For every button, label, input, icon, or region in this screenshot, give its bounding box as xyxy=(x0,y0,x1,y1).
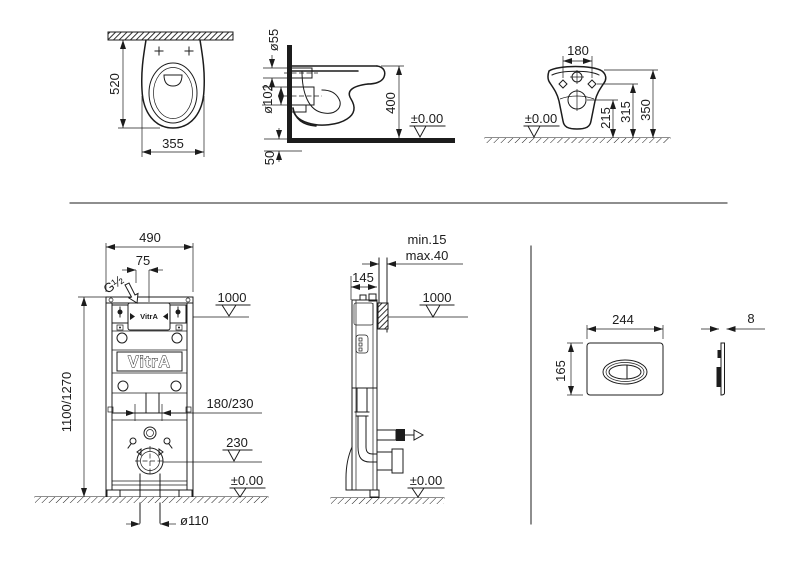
dim-floor: 50 xyxy=(262,151,277,165)
wc-pan-rear-view: 180 215 315 350 ±0.00 xyxy=(485,43,670,143)
supply-stub xyxy=(377,430,396,440)
dim-outlet-spacing: 180/230 xyxy=(207,396,254,411)
datum-triangle xyxy=(234,488,246,497)
brand-plate-label: VitrA xyxy=(128,354,171,371)
water-inlet-arrow xyxy=(125,283,138,303)
dim-inlet-offset: 75 xyxy=(136,253,150,268)
drain-flange xyxy=(392,449,403,473)
fixing-hole-right xyxy=(588,80,596,88)
dim-bolt-spacing: 180 xyxy=(567,43,589,58)
dim-outlet-height: 215 xyxy=(598,107,613,129)
datum-label: ±0.00 xyxy=(411,111,443,126)
dim-depth: 520 xyxy=(107,73,122,95)
technical-drawing-sheet: 520 355 ø55 ø102 xyxy=(0,0,800,563)
datum-label: ±0.00 xyxy=(410,473,442,488)
datum-triangle xyxy=(426,305,440,317)
wc-pan-side-view: ø55 ø102 400 ±0.00 50 xyxy=(260,29,455,165)
dim-panel-height: 1000 xyxy=(423,290,452,305)
dim-plate-thickness: 8 xyxy=(747,311,754,326)
hook-right xyxy=(164,438,172,448)
button-surround xyxy=(603,360,647,384)
seat-outer-ring xyxy=(149,63,197,123)
pipe-hole xyxy=(172,333,182,343)
dual-flush-button xyxy=(609,365,641,379)
fixing-hole-left xyxy=(559,80,567,88)
installation-frame-side-view: min.15 max.40 145 xyxy=(331,232,468,504)
dim-width: 355 xyxy=(162,136,184,151)
wc-pan-front-view: 520 355 xyxy=(107,32,233,157)
dim-finish-max: max.40 xyxy=(406,248,449,263)
pipe-hole xyxy=(117,333,127,343)
dim-drain-height: 230 xyxy=(226,435,248,450)
dim-plate-width: 244 xyxy=(612,312,634,327)
dim-plate-height: 165 xyxy=(553,360,568,382)
dim-height: 400 xyxy=(383,92,398,114)
floor-hatch xyxy=(35,497,268,503)
supply-connection xyxy=(144,427,156,439)
datum-triangle xyxy=(222,305,236,316)
datum-triangle xyxy=(228,450,240,461)
frame-outline xyxy=(106,297,193,497)
frame-foot-left xyxy=(107,490,120,497)
frame-foot xyxy=(370,490,379,497)
bowl-inner-profile xyxy=(302,71,340,113)
dim-frame-height: 1100/1270 xyxy=(59,372,74,433)
flush-opening xyxy=(164,75,182,86)
frame-leg-profile xyxy=(346,447,352,490)
dim-frame-width: 490 xyxy=(139,230,161,245)
valve-knob xyxy=(396,429,405,441)
ground-hatch xyxy=(485,138,670,143)
flush-plate-front xyxy=(587,343,663,395)
installation-frame-front-view: VitrA VitrA xyxy=(35,230,268,528)
datum-triangle xyxy=(528,126,540,137)
hook-left xyxy=(128,438,136,448)
datum-label: ±0.00 xyxy=(525,111,557,126)
datum-label: ±0.00 xyxy=(231,473,263,488)
bowl-outline xyxy=(142,40,205,128)
frame-foot-right xyxy=(179,490,192,497)
flush-mechanism xyxy=(356,335,368,353)
dim-outlet: ø102 xyxy=(260,84,275,114)
dim-drain-diameter: ø110 xyxy=(180,513,209,528)
brand-tank-label: VitrA xyxy=(140,312,158,321)
wall-anchor-block xyxy=(378,303,388,329)
inlet-outlet-steps xyxy=(292,68,314,112)
dim-flush-inlet: ø55 xyxy=(266,29,281,51)
floor-hatch xyxy=(331,498,444,504)
dim-frame-depth: 145 xyxy=(352,270,374,285)
wall-anchor-cone xyxy=(414,430,423,440)
flush-plate-side xyxy=(717,343,725,395)
fixing-cross-marks xyxy=(155,47,193,55)
dim-inlet-height: 315 xyxy=(618,101,633,123)
flush-plate-views: 244 165 8 xyxy=(553,311,765,395)
drawing-canvas: 520 355 ø55 ø102 xyxy=(0,0,800,563)
wall-hatch xyxy=(108,32,233,40)
wall-section xyxy=(287,45,292,138)
dim-panel-height: 1000 xyxy=(218,290,247,305)
cistern-side xyxy=(354,303,373,325)
pipe-hole xyxy=(118,381,128,391)
drain-bend xyxy=(377,452,392,470)
dim-top-height: 350 xyxy=(638,99,653,121)
datum-triangle xyxy=(414,126,426,137)
dim-finish-min: min.15 xyxy=(407,232,446,247)
dim-inlet-thread: G½ xyxy=(101,272,127,296)
floor-section xyxy=(287,138,455,143)
pipe-hole xyxy=(171,381,181,391)
datum-triangle xyxy=(412,488,424,497)
